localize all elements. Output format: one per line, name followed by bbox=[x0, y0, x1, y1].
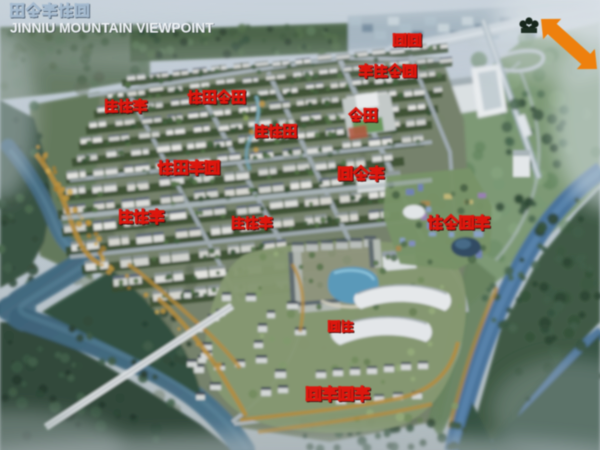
svg-text:JINNIU MOUNTAIN VIEWPOINT: JINNIU MOUNTAIN VIEWPOINT bbox=[10, 20, 214, 35]
